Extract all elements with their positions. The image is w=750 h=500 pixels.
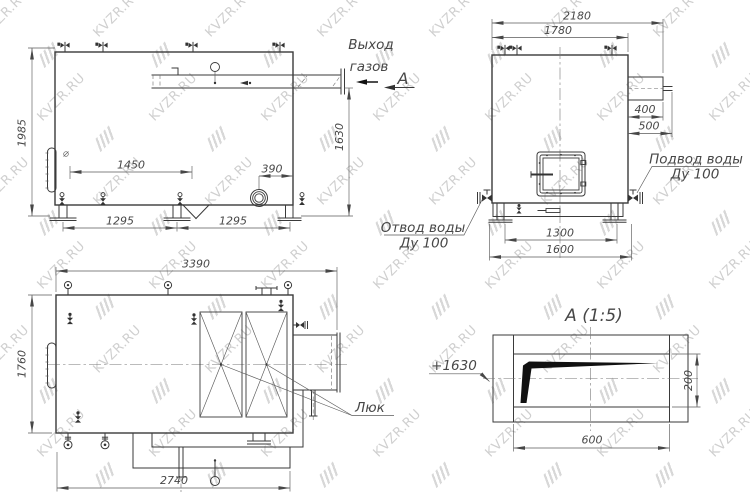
svg-text:1450: 1450	[117, 159, 145, 172]
water-outlet-valve	[478, 190, 493, 204]
svg-text:400: 400	[635, 103, 656, 116]
gas-duct	[293, 333, 340, 420]
dim-outlet-height-1630: 1630	[301, 88, 353, 216]
gas-duct	[152, 68, 345, 94]
manhole-flange	[46, 343, 57, 388]
dim-overall-width-2180: 2180	[492, 10, 663, 74]
top-valves	[64, 282, 291, 296]
svg-text:390: 390	[262, 163, 283, 176]
dim-duct-400: 400	[628, 102, 663, 121]
water-inlet-label: Подвод воды Ду 100	[637, 152, 743, 194]
svg-text:Люк: Люк	[354, 400, 386, 416]
svg-text:2180: 2180	[563, 10, 591, 23]
gas-outlet-label: Выход газов	[348, 37, 394, 75]
svg-text:Отвод воды: Отвод воды	[381, 220, 466, 236]
svg-text:1600: 1600	[546, 243, 574, 256]
burner-flange	[251, 190, 268, 207]
gas-flow-arrow	[356, 79, 378, 85]
body-valves	[67, 300, 308, 423]
side-view: А Выход газов	[16, 37, 415, 232]
boiler-body-outline	[48, 295, 347, 433]
gas-duct-stub	[628, 77, 672, 100]
dim-width-600: 600	[514, 424, 670, 452]
svg-text:+1630: +1630	[431, 358, 477, 374]
dim-width-1760: 1760	[16, 295, 53, 433]
top-valves	[497, 45, 616, 55]
svg-text:1295: 1295	[106, 215, 134, 228]
view-direction-arrow: А	[384, 69, 414, 90]
bottom-valves	[64, 433, 109, 449]
svg-text:1985: 1985	[16, 119, 29, 147]
water-outlet-label: Отвод воды Ду 100	[381, 199, 483, 252]
top-valves	[57, 42, 284, 52]
base-frame	[133, 390, 303, 492]
svg-text:газов: газов	[350, 59, 389, 75]
drawing-sheet: KVZR.RUKVZR.RUKVZR.RUKVZR.RUKVZR.RUKVZR.…	[0, 0, 750, 500]
plan-view: 3390 1760 2740 Люк	[16, 258, 395, 493]
base-frame	[489, 203, 626, 222]
manhole-flange	[46, 148, 69, 192]
water-inlet-valve	[628, 190, 643, 204]
dim-height-200: 200	[672, 354, 701, 407]
dim-leg-span-1300: 1300	[505, 224, 617, 244]
end-view: 2180 1780 400 500 1300	[381, 10, 744, 261]
view-arrow-letter: А	[397, 69, 409, 88]
svg-text:1780: 1780	[544, 24, 572, 37]
svg-text:1300: 1300	[546, 227, 574, 240]
dim-base-length-2740: 2740	[57, 452, 290, 492]
dim-length-3390: 3390	[56, 258, 337, 331]
drain-valves	[59, 193, 305, 205]
svg-text:1630: 1630	[333, 123, 346, 151]
svg-text:500: 500	[639, 120, 660, 133]
dim-height-1985: 1985	[16, 48, 56, 216]
svg-text:1295: 1295	[219, 215, 247, 228]
svg-text:600: 600	[582, 434, 603, 447]
weld-mark	[521, 362, 659, 404]
svg-text:2740: 2740	[160, 474, 188, 487]
support-legs	[50, 205, 301, 221]
technical-drawing: А Выход газов	[0, 0, 750, 500]
svg-text:Ду 100: Ду 100	[670, 167, 720, 183]
svg-text:Ду 100: Ду 100	[399, 236, 449, 252]
duct-section-outline	[483, 327, 698, 431]
elevation-label: +1630	[429, 358, 490, 382]
duct-sensor	[211, 63, 220, 85]
detail-title: А (1:5)	[564, 306, 623, 326]
furnace-door	[531, 152, 586, 196]
svg-text:Подвод воды: Подвод воды	[649, 152, 743, 168]
dim-valve-spacing-1450: 1450	[70, 159, 192, 180]
dim-leg-span-left-1295: 1295	[63, 215, 177, 232]
svg-text:200: 200	[682, 370, 695, 391]
svg-text:1760: 1760	[16, 350, 29, 378]
dim-flange-390: 390	[259, 163, 293, 190]
detail-view-a: А (1:5) 200 600	[429, 306, 701, 452]
svg-text:Выход: Выход	[348, 37, 394, 53]
svg-text:3390: 3390	[182, 258, 210, 271]
